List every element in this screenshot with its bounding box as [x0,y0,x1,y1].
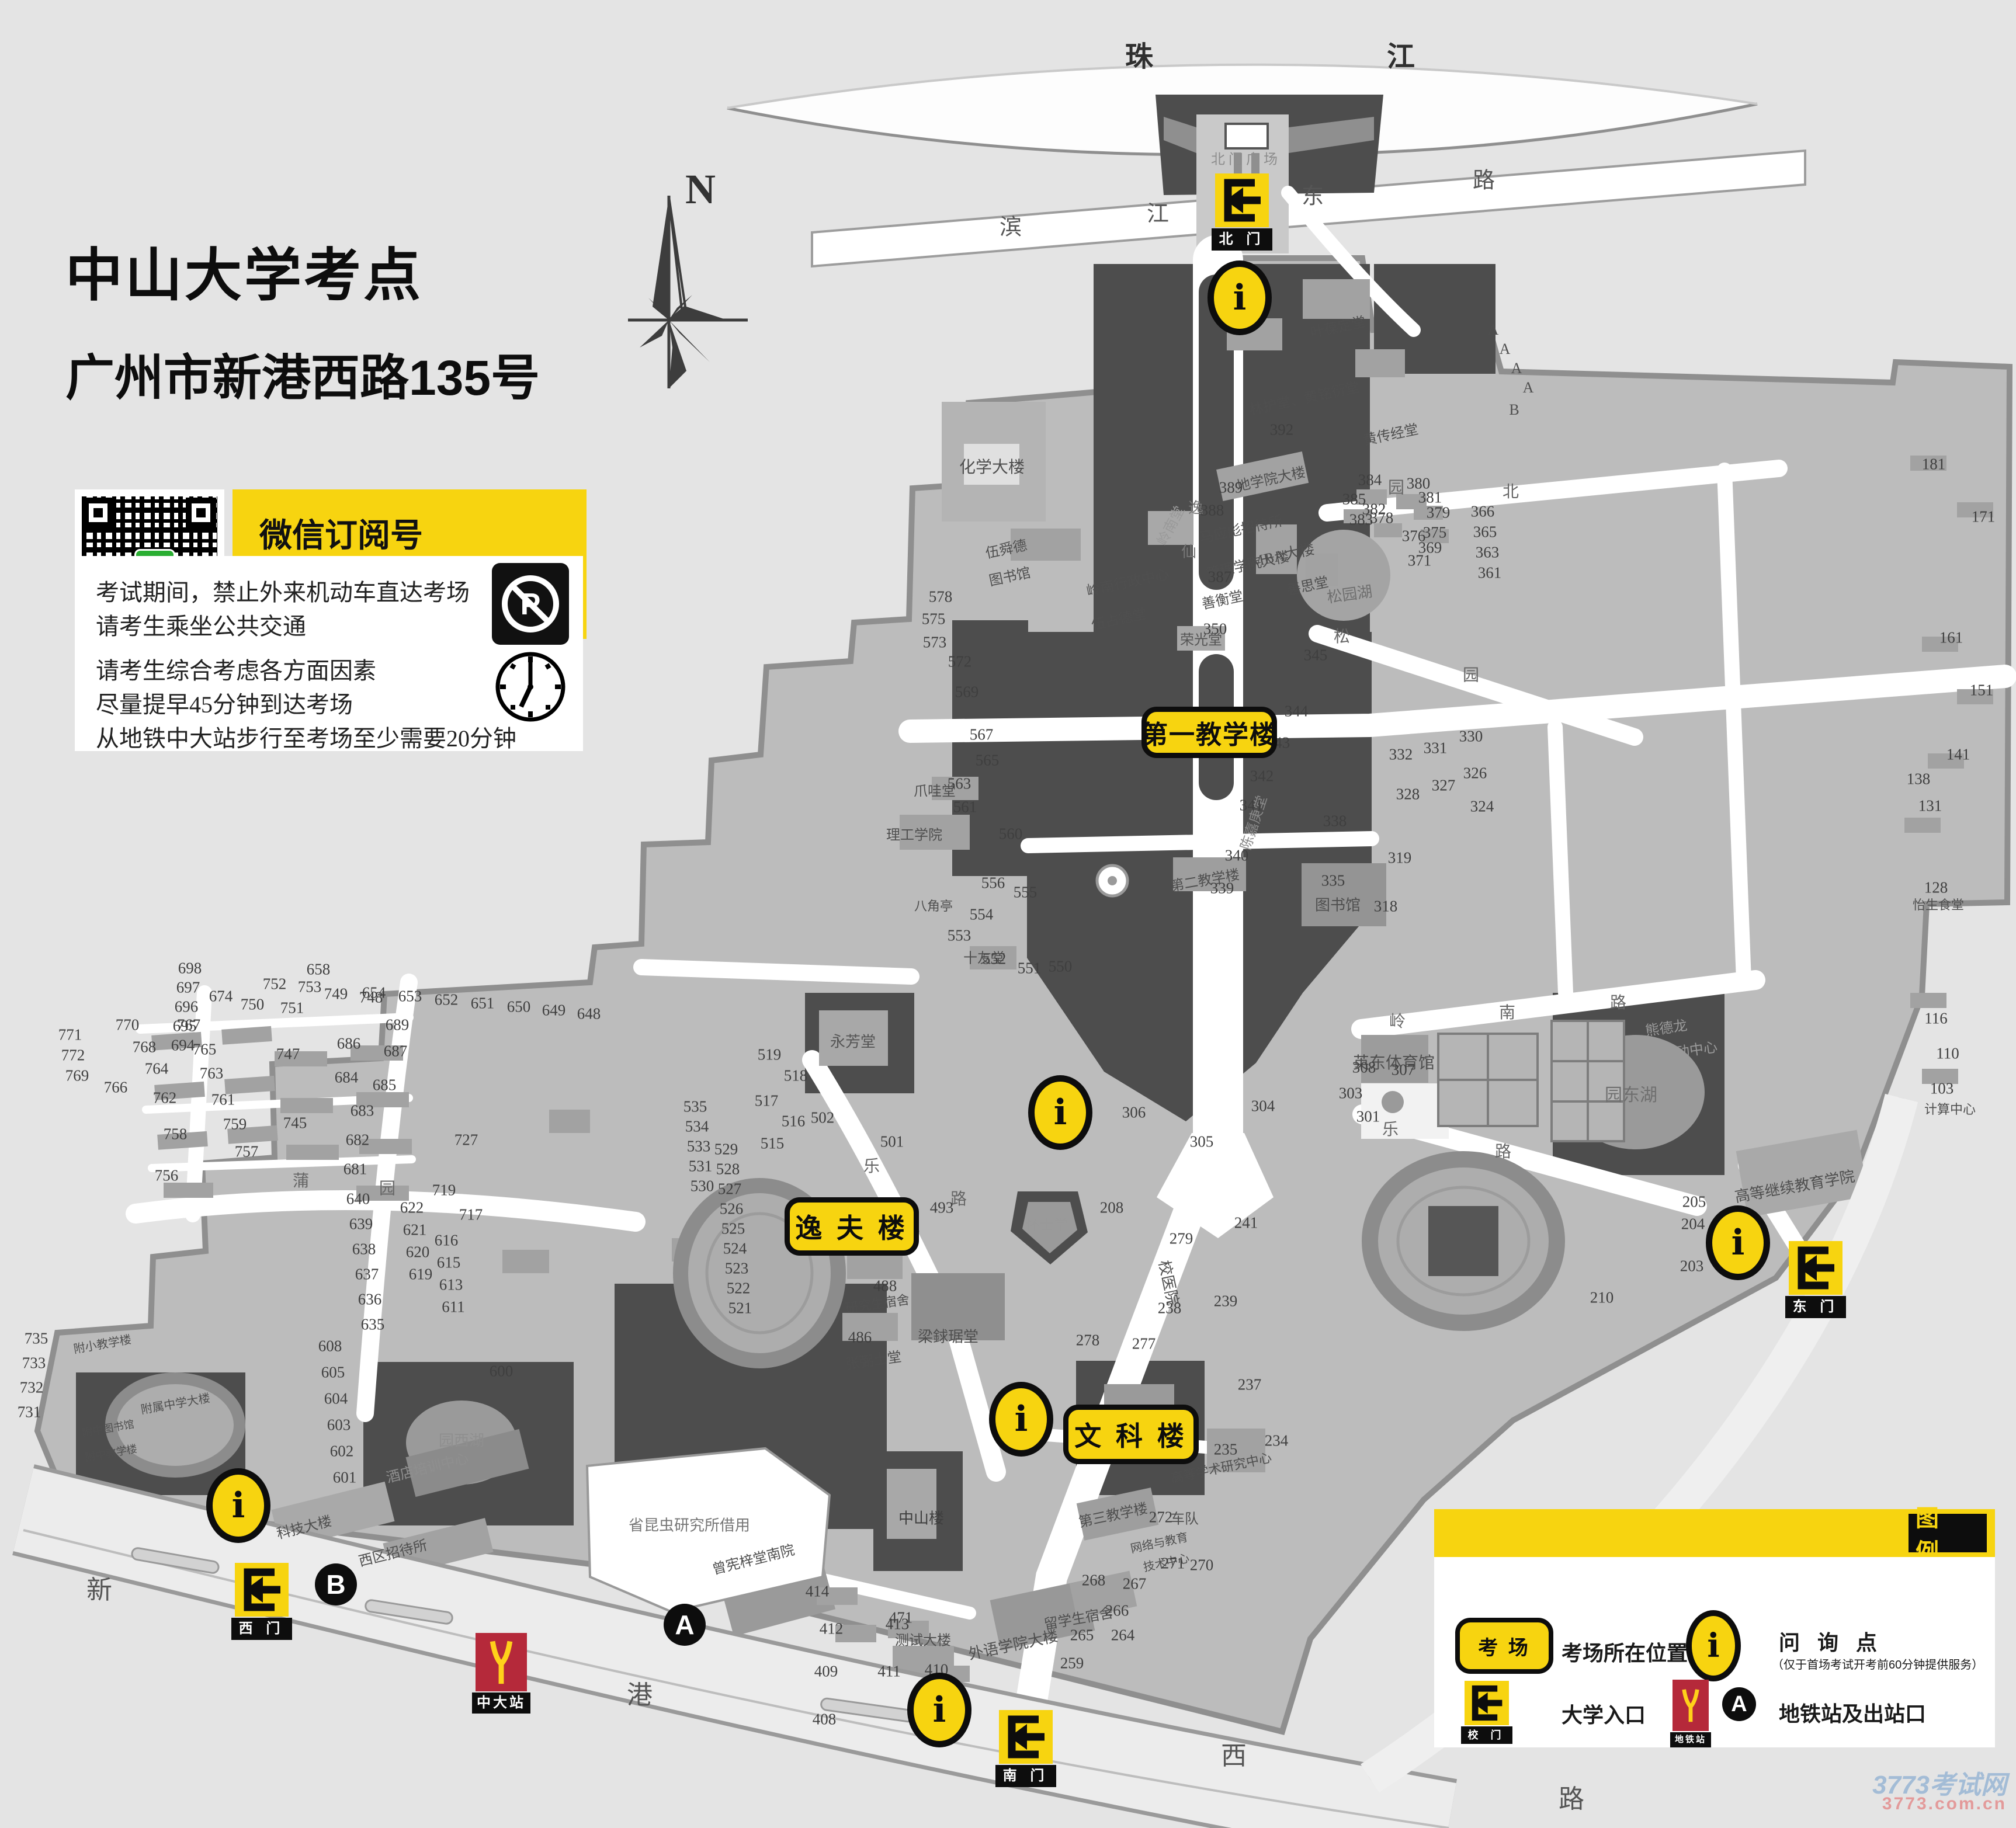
info-point-marker: i [907,1673,971,1747]
legend-gate-icon: 校 门 [1465,1681,1512,1744]
building-number: 698 [178,960,202,978]
building-number: 694 [171,1037,195,1055]
metro-station-marker: 中大站 [476,1633,530,1714]
building-number: 350 [1203,620,1227,638]
building-number: 210 [1590,1289,1614,1307]
exam-map-poster: 中山大学考点 广州市新港西路135号 微信订阅号 中山大学研究生招生 考试期间，… [0,0,2016,1828]
building-number: 575 [922,610,946,628]
building-number: 501 [880,1133,904,1151]
map-label: 北 门 广 场 [1211,148,1278,168]
building-number: 234 [1265,1432,1289,1450]
map-label: 江 [1387,33,1415,74]
map-label: 梁銶琚堂 [918,1325,978,1347]
legend-panel: 考 场 考场所在位置 i 问 询 点 （仅于首场考试开考前60分钟提供服务） 校… [1434,1557,1995,1747]
building-number: 380 [1407,475,1431,493]
info-point-marker: i [989,1382,1053,1457]
qr-finder-icon [83,498,113,528]
building-number: 620 [406,1243,430,1261]
building-number: 578 [929,588,953,606]
gate-door-icon [999,1710,1053,1764]
map-label: 蒲 [293,1168,309,1191]
info-point-marker: i [206,1468,270,1543]
building-number: 237 [1238,1376,1262,1394]
venue-badge: 逸 夫 楼 [785,1197,919,1256]
building-number: 640 [346,1190,370,1208]
building-number: 338 [1323,812,1347,830]
gate-name-tag: 北 门 [1212,228,1272,251]
building-number: 601 [333,1469,357,1487]
map-label: 园 [1388,475,1404,498]
legend-venue-text: 考场所在位置 [1562,1636,1688,1667]
notice-box: 考试期间，禁止外来机动车直达考场 请考生乘坐公共交通 请考生综合考虑各方面因素 … [75,556,583,751]
clock-icon [493,649,568,724]
building-number: 649 [542,1002,566,1020]
building-number: 277 [1132,1335,1156,1353]
building-number: 345 [1304,647,1328,665]
map-label: 滨 [1000,209,1022,241]
building-number: 518 [784,1067,808,1085]
building-number: 765 [193,1041,217,1059]
building-number: 763 [200,1065,224,1083]
building-number: 651 [471,995,495,1013]
building-number: 339 [1210,880,1234,898]
building-number: 241 [1234,1214,1258,1232]
building-number: 555 [1014,884,1038,902]
map-label: 怀士堂 [1026,1214,1068,1234]
venue-badge: 文 科 楼 [1063,1405,1199,1464]
building-number: 387 [1208,568,1232,586]
building-number: 638 [352,1240,376,1259]
building-number: 378 [1370,509,1394,527]
building-number: 563 [948,775,971,793]
building-number: 389 [1219,479,1243,497]
building-number: 271 [1161,1555,1185,1573]
building-number: 529 [714,1141,738,1159]
building-number: 259 [1060,1655,1084,1673]
building-number: 681 [343,1160,367,1179]
watermark-site-url: 3773.com.cn [1773,1794,2007,1814]
map-label: 省昆虫研究所借用 [629,1514,750,1535]
building-number: 689 [386,1016,410,1034]
building-number: 238 [1158,1299,1182,1318]
building-number: 306 [1122,1104,1146,1122]
building-number: 556 [981,874,1005,892]
building-number: 552 [983,950,1007,968]
building-number: 658 [307,961,331,979]
building-number: 761 [211,1091,235,1109]
map-label: 新 [86,1569,112,1606]
map-label: 路 [1495,1139,1511,1162]
building-number: 687 [384,1042,408,1061]
map-label: 园 [1463,662,1479,686]
building-number: 764 [145,1060,169,1078]
page-title: 中山大学考点 [65,229,423,312]
building-number: 171 [1972,508,1996,526]
gate-marker: 北 门 [1215,173,1272,251]
building-number: 366 [1471,503,1495,521]
building-number: 635 [361,1316,385,1334]
building-number: 412 [820,1620,844,1638]
gate-marker: 南 门 [999,1710,1056,1787]
map-label: A [1488,321,1499,339]
building-number: 528 [716,1160,740,1179]
map-label: 港 [627,1674,653,1711]
map-label: A [1500,340,1511,358]
building-number: 131 [1918,797,1942,815]
qr-finder-icon [186,498,216,528]
page-subtitle: 广州市新港西路135号 [65,339,540,409]
map-label: 怡生食堂 [1913,895,1964,913]
building-number: 342 [1250,767,1274,786]
building-number: 603 [327,1416,351,1434]
building-number: 616 [435,1232,459,1250]
building-number: 341 [1240,797,1264,815]
building-number: 695 [173,1017,197,1035]
building-number: 750 [241,996,265,1014]
building-number: 619 [409,1266,433,1284]
building-number: 637 [355,1266,379,1284]
building-number: 749 [324,985,348,1003]
building-number: 392 [1270,421,1294,439]
building-number: 204 [1681,1215,1705,1233]
building-number: 308 [1352,1059,1376,1077]
building-number: 331 [1424,739,1448,757]
building-number: 272 [1149,1509,1173,1527]
building-number: 573 [923,634,947,652]
map-label: 松 [1334,624,1350,647]
legend-exit-icon: A [1722,1687,1756,1721]
gate-name-tag: 西 门 [231,1618,292,1640]
building-number: 654 [362,984,386,1002]
building-number: 685 [373,1076,397,1094]
building-number: 326 [1463,764,1487,783]
building-number: 554 [970,906,994,924]
gate-name-tag: 南 门 [995,1765,1056,1787]
building-number: 717 [459,1206,483,1224]
building-number: 622 [400,1199,424,1217]
building-number: 565 [976,752,1000,770]
building-number: 600 [490,1363,513,1381]
building-number: 151 [1970,682,1994,700]
building-number: 604 [324,1390,348,1408]
building-number: 128 [1924,879,1948,897]
info-point-marker: i [1028,1075,1092,1150]
building-number: 771 [58,1026,82,1044]
legend-gate-tag: 校 门 [1461,1726,1512,1744]
map-label: 八角亭 [914,896,953,915]
building-number: 674 [209,988,233,1006]
building-number: 379 [1427,504,1451,522]
legend-metro-icon: 地铁站 [1673,1680,1711,1747]
building-number: 527 [718,1180,742,1198]
building-number: 569 [955,683,979,701]
legend-metro-tag: 地铁站 [1670,1732,1711,1747]
building-number: 303 [1339,1085,1363,1103]
building-number: 411 [877,1663,901,1681]
building-number: 521 [728,1299,752,1318]
notice-line-4: 尽量提早45分钟到达考场 [96,691,353,718]
map-label: 车队 [1171,1507,1199,1528]
no-parking-icon: P [492,563,569,645]
building-number: 493 [930,1199,954,1217]
building-number: 264 [1111,1627,1135,1645]
building-number: 747 [276,1045,300,1064]
building-number: 265 [1070,1627,1094,1645]
building-number: 205 [1682,1193,1706,1211]
info-point-marker: i [1207,260,1272,335]
building-number: 344 [1285,703,1309,721]
building-number: 696 [175,998,199,1016]
gate-door-icon [235,1563,289,1617]
building-number: 684 [335,1069,359,1087]
building-number: 727 [454,1131,478,1149]
legend-gate-text: 大学入口 [1562,1698,1646,1729]
building-number: 369 [1418,539,1442,557]
building-number: 409 [814,1663,838,1681]
map-label: B [1509,401,1519,419]
building-number: 561 [953,798,977,816]
legend-title: 图 例 [1909,1514,1987,1552]
building-number: 239 [1214,1292,1238,1311]
building-number: 161 [1939,629,1963,647]
map-label: 园 [379,1176,395,1199]
building-number: 697 [176,979,200,997]
building-number: 683 [351,1102,374,1120]
building-number: 652 [435,991,459,1009]
sports-courts [1438,1021,1624,1141]
map-label: 计算中心 [1924,1099,1976,1118]
metro-exit-marker: A [664,1604,706,1646]
building-number: 759 [223,1115,247,1134]
building-number: 753 [298,978,322,996]
building-number: 305 [1190,1133,1214,1151]
building-number: 266 [1105,1602,1129,1620]
building-number: 553 [948,927,971,945]
building-number: 103 [1930,1080,1954,1098]
building-number: 772 [61,1047,85,1065]
building-number: 648 [577,1005,601,1023]
legend-header-bar: 图 例 [1434,1509,1995,1557]
gate-marker: 西 门 [235,1563,292,1640]
building-number: 756 [155,1167,179,1185]
building-number: 388 [1200,502,1224,520]
building-number: 682 [346,1131,370,1149]
venue-badge: 第一教学楼 [1141,707,1277,758]
building-number: 768 [133,1038,157,1057]
building-number: 608 [318,1337,342,1356]
building-number: 621 [403,1221,427,1239]
compass-north-label: N [685,165,716,214]
building-number: 208 [1100,1199,1124,1217]
building-number: 639 [349,1215,373,1233]
building-number: 307 [1392,1061,1415,1079]
building-number: 328 [1396,786,1420,804]
building-number: 384 [1358,471,1382,489]
map-label: 乐 [1382,1117,1399,1140]
building-number: 735 [25,1330,48,1348]
building-number: 686 [337,1035,361,1053]
gate-name-tag: 东 门 [1785,1296,1846,1318]
building-number: 330 [1459,728,1483,746]
map-label: 乐 [863,1153,880,1177]
building-number: 363 [1476,544,1500,562]
building-number: 110 [1936,1045,1959,1063]
building-number: 615 [437,1254,461,1272]
building-number: 278 [1076,1332,1100,1350]
building-number: 762 [153,1089,177,1107]
building-number: 636 [358,1291,382,1309]
building-number: 516 [782,1113,806,1131]
building-number: 181 [1922,456,1946,474]
building-number: 203 [1680,1257,1704,1276]
map-label: 江 [1147,196,1169,228]
map-label: 仙 [1181,540,1196,562]
building-number: 613 [439,1276,463,1294]
notice-line-5: 从地铁中大站步行至考场至少需要20分钟 [96,725,516,752]
building-number: 515 [761,1135,785,1153]
building-number: 572 [948,653,972,671]
building-number: 270 [1190,1556,1214,1575]
building-number: 361 [1478,564,1502,582]
building-number: 758 [164,1125,188,1144]
building-number: 766 [104,1079,128,1097]
map-label: 中山楼 [898,1507,944,1528]
building-number: 335 [1321,872,1345,890]
building-number: 304 [1251,1097,1275,1115]
notice-line-1: 考试期间，禁止外来机动车直达考场 [96,579,470,606]
map-label: 南 [1499,1000,1515,1023]
map-label: 化学大楼 [959,454,1025,478]
map-label: 路 [1610,990,1626,1013]
info-point-marker: i [1706,1205,1770,1280]
map-label: 图书馆 [1315,894,1361,915]
building-number: 719 [432,1181,456,1200]
building-number: 535 [683,1098,707,1116]
legend-metro-text: 地铁站及出站口 [1779,1697,1926,1728]
building-number: 567 [970,726,994,744]
building-number: 327 [1432,777,1456,795]
map-label: 岭 [1389,1009,1406,1032]
building-number: 732 [20,1379,44,1397]
wechat-line1: 微信订阅号 [259,509,423,557]
building-number: 524 [723,1240,747,1258]
building-number: 365 [1473,523,1497,541]
building-number: 141 [1946,746,1970,764]
building-number: 267 [1123,1575,1147,1593]
building-number: 235 [1214,1441,1238,1459]
building-number: 751 [280,999,304,1017]
building-number: 138 [1907,770,1931,788]
building-number: 486 [848,1329,872,1347]
legend-venue-badge: 考 场 [1455,1618,1553,1674]
building-number: 769 [65,1067,89,1085]
building-number: 519 [758,1046,782,1064]
building-number: 319 [1388,849,1412,867]
map-label: 永芳堂 [830,1030,876,1052]
building-number: 522 [727,1280,751,1298]
map-label: 北 [1503,479,1519,502]
map-label: 路 [1559,1778,1584,1815]
map-label: 路 [1473,162,1495,194]
metro-station-name: 中大站 [472,1693,530,1714]
building-number: 279 [1170,1230,1193,1248]
building-number: 533 [687,1138,711,1156]
building-number: 550 [1049,958,1073,976]
building-number: 605 [321,1364,345,1382]
building-number: 324 [1470,798,1494,816]
gate-marker: 东 门 [1789,1241,1846,1318]
building-number: 488 [873,1277,897,1295]
building-number: 523 [725,1260,749,1278]
building-number: 653 [398,988,422,1006]
building-number: 502 [811,1109,835,1127]
metro-logo-icon [476,1633,527,1691]
building-number: 116 [1924,1010,1948,1028]
map-label: 理工学院 [886,823,942,844]
map-label: 东 [1302,178,1324,210]
building-number: 733 [22,1354,46,1372]
building-number: 611 [442,1298,465,1316]
map-label: 园东湖 [1605,1080,1657,1106]
building-number: 745 [283,1114,307,1132]
gate-door-icon [1789,1241,1842,1295]
building-number: 318 [1374,898,1398,916]
building-number: 531 [689,1158,713,1176]
legend-info-note: （仅于首场考试开考前60分钟提供服务） [1772,1655,1983,1672]
building-number: 757 [235,1143,259,1161]
map-label: 珠 [1125,33,1153,74]
building-number: 650 [507,998,531,1016]
map-label: 西 [1221,1735,1247,1772]
gate-door-icon [1215,173,1269,227]
building-number: 525 [721,1220,745,1238]
building-number: 517 [755,1092,779,1110]
building-number: 731 [18,1403,41,1422]
building-number: 414 [806,1583,830,1601]
building-number: 526 [720,1200,744,1218]
map-label: A [1523,379,1534,397]
building-number: 340 [1225,847,1249,865]
building-number: 770 [116,1016,140,1034]
building-number: 408 [813,1711,837,1729]
building-number: 560 [999,825,1023,843]
notice-line-3: 请考生综合考虑各方面因素 [96,658,376,684]
metro-exit-marker: B [315,1563,357,1605]
building-number: 602 [330,1443,354,1461]
building-number: 534 [685,1118,709,1136]
legend-info-icon: i [1686,1610,1741,1681]
notice-line-2: 请考生乘坐公共交通 [96,613,306,640]
building-number: 752 [263,975,287,993]
compass-rose: N [616,161,762,400]
building-number: 551 [1018,960,1042,978]
building-number: 268 [1082,1572,1106,1590]
building-number: 530 [690,1177,714,1196]
map-label: A [1511,360,1522,377]
building-number: 413 [886,1615,910,1634]
legend-info-text: 问 询 点 [1779,1626,1883,1656]
building-number: 332 [1389,746,1413,764]
building-number: 301 [1356,1108,1380,1126]
